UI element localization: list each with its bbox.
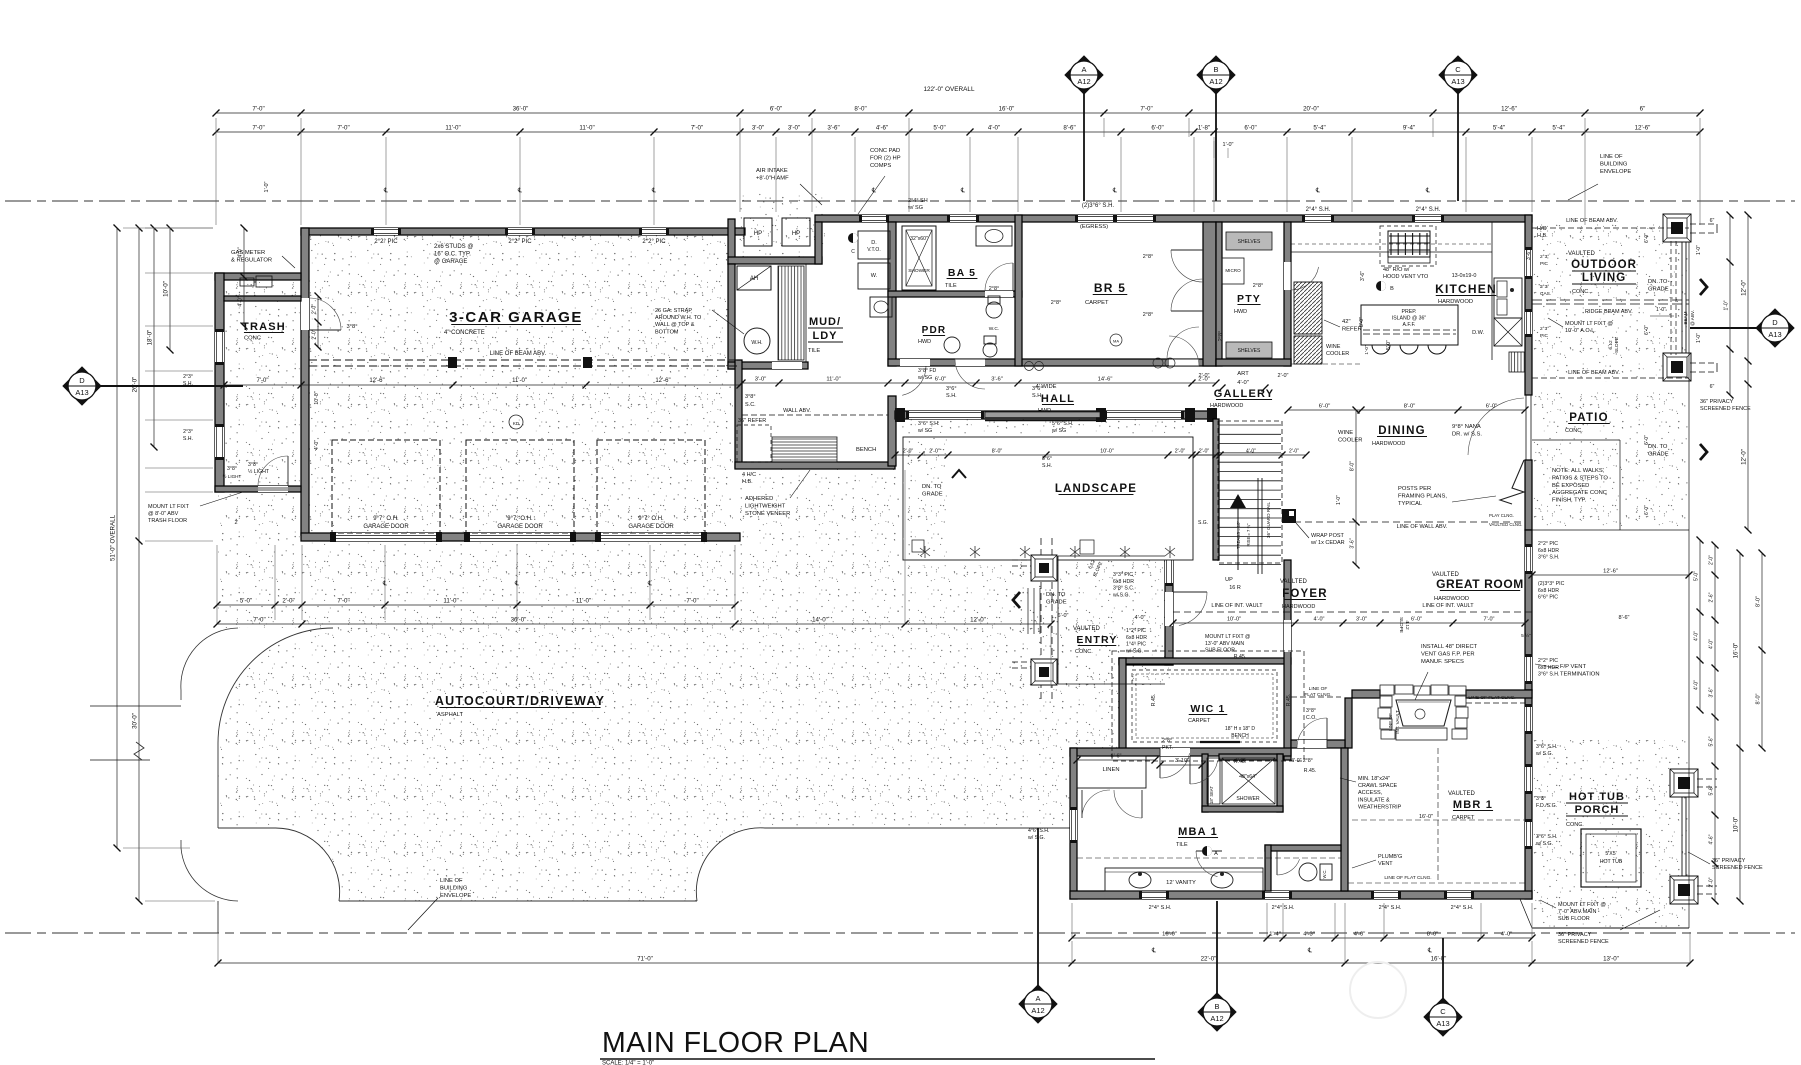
svg-text:7'-0": 7'-0"	[1484, 617, 1495, 623]
svg-text:6°6° PIC: 6°6° PIC	[1538, 595, 1558, 601]
svg-text:W.H.: W.H.	[751, 340, 762, 346]
svg-text:4'-3": 4'-3"	[1303, 932, 1315, 938]
svg-text:16" O.C. TYP.: 16" O.C. TYP.	[434, 252, 471, 258]
svg-text:BA 5: BA 5	[948, 267, 976, 279]
svg-text:@ GARAGE: @ GARAGE	[434, 259, 467, 265]
svg-text:W.C.: W.C.	[989, 326, 999, 332]
svg-text:VAULTED CLNG.: VAULTED CLNG.	[1489, 522, 1523, 527]
svg-text:℄: ℄	[651, 187, 657, 194]
svg-text:OUTDOOR: OUTDOOR	[1571, 259, 1637, 271]
svg-text:TILE: TILE	[945, 283, 957, 289]
svg-text:3°8°: 3°8°	[346, 324, 357, 330]
svg-text:4'-0": 4'-0"	[238, 296, 244, 306]
svg-text:8'-0": 8'-0"	[1427, 932, 1439, 938]
svg-text:8'-0": 8'-0"	[854, 106, 866, 113]
svg-text:7'-0": 7'-0"	[337, 125, 349, 132]
svg-text:w/ S.G.: w/ S.G.	[1536, 841, 1553, 847]
svg-text:4'-0": 4'-0"	[988, 125, 1000, 132]
svg-text:SUB FLOOR: SUB FLOOR	[1205, 648, 1235, 654]
svg-text:4'-0": 4'-0"	[1246, 449, 1256, 455]
svg-text:2°8°: 2°8°	[1253, 283, 1264, 289]
svg-text:BOTTOM: BOTTOM	[655, 329, 679, 335]
svg-text:INSTALL 48" DIRECT: INSTALL 48" DIRECT	[1421, 644, 1478, 650]
svg-text:12'-0": 12'-0"	[1741, 449, 1748, 465]
svg-text:LINE OF: LINE OF	[440, 878, 463, 884]
svg-text:3°3° PIC: 3°3° PIC	[1113, 572, 1133, 578]
svg-text:LINE OF: LINE OF	[1309, 686, 1328, 692]
svg-text:ISLAND @ 36": ISLAND @ 36"	[1392, 316, 1427, 322]
svg-text:6x8 HDR: 6x8 HDR	[1538, 548, 1559, 554]
svg-text:1'-8": 1'-8"	[1198, 125, 1210, 132]
svg-text:PATIOS & STEPS TO: PATIOS & STEPS TO	[1552, 475, 1608, 481]
svg-text:3°6°: 3°6°	[1032, 386, 1043, 392]
svg-text:4'-0": 4'-0"	[238, 247, 244, 257]
svg-text:MOUNT LT FIXT @: MOUNT LT FIXT @	[1205, 634, 1250, 640]
svg-text:A13: A13	[1451, 77, 1464, 86]
svg-text:w/ 1x CEDAR: w/ 1x CEDAR	[1310, 540, 1345, 546]
svg-text:12'-0": 12'-0"	[970, 617, 986, 624]
svg-text:CARPET: CARPET	[1188, 718, 1211, 724]
svg-text:VAULTED: VAULTED	[1448, 791, 1475, 797]
svg-text:11'-0": 11'-0"	[443, 598, 458, 605]
svg-text:A13: A13	[75, 388, 88, 397]
svg-text:4'-0": 4'-0"	[1135, 615, 1146, 621]
svg-text:3'-6": 3'-6"	[1360, 271, 1366, 281]
svg-text:PREP.: PREP.	[1402, 309, 1417, 315]
svg-text:SHOWER: SHOWER	[908, 268, 930, 274]
svg-text:3°8°: 3°8°	[227, 466, 237, 472]
svg-text:2°3°: 2°3°	[1540, 326, 1549, 332]
svg-text:18" SEAT: 18" SEAT	[1209, 786, 1214, 804]
svg-text:NOTE: ALL WALKS,: NOTE: ALL WALKS,	[1552, 468, 1605, 474]
svg-text:HARDWOOD: HARDWOOD	[1438, 299, 1473, 305]
svg-text:20'-0": 20'-0"	[1303, 106, 1319, 113]
svg-text:2'-0": 2'-0"	[1199, 373, 1210, 379]
svg-text:SHOWER: SHOWER	[1236, 796, 1260, 802]
svg-text:FRAMING PLANS,: FRAMING PLANS,	[1398, 493, 1447, 499]
svg-text:KITCHEN: KITCHEN	[1435, 282, 1497, 296]
svg-text:B: B	[1214, 1002, 1219, 1011]
svg-text:MIN. 18"x24": MIN. 18"x24"	[1358, 776, 1390, 782]
svg-text:BUILDING: BUILDING	[440, 885, 468, 891]
svg-text:VAULTED: VAULTED	[1280, 579, 1307, 585]
svg-text:1'-0": 1'-0"	[264, 181, 270, 192]
svg-text:7'-8": 7'-8"	[1235, 758, 1246, 764]
svg-text:MOUNT LT FIXT @: MOUNT LT FIXT @	[1565, 321, 1613, 327]
svg-text:6x8 HDR: 6x8 HDR	[1113, 579, 1134, 585]
svg-text:2'-0": 2'-0"	[312, 304, 318, 314]
svg-text:5'-6": 5'-6"	[1709, 785, 1715, 795]
svg-text:5'-0": 5'-0"	[240, 598, 252, 605]
svg-text:CRAWL SPACE: CRAWL SPACE	[1358, 783, 1398, 789]
svg-text:2'-6": 2'-6"	[1709, 592, 1715, 602]
svg-text:3'-10": 3'-10"	[1175, 758, 1189, 764]
svg-text:9'-4": 9'-4"	[1403, 125, 1415, 132]
svg-text:1°2° PIC: 1°2° PIC	[1126, 628, 1146, 634]
svg-text:w/ SG: w/ SG	[907, 205, 923, 211]
svg-text:5'-6": 5'-6"	[1709, 736, 1715, 746]
svg-text:TYPICAL: TYPICAL	[1398, 501, 1423, 507]
svg-text:S.H.: S.H.	[946, 393, 957, 399]
svg-text:3°6° S.H.: 3°6° S.H.	[1538, 672, 1559, 678]
svg-text:S.H.: S.H.	[183, 436, 193, 442]
svg-text:16'-0": 16'-0"	[1162, 932, 1177, 938]
svg-text:C.O.: C.O.	[1306, 715, 1317, 721]
svg-text:4'-0": 4'-0"	[1694, 680, 1700, 690]
svg-text:PTY: PTY	[1237, 293, 1261, 305]
svg-text:D: D	[1772, 318, 1778, 327]
svg-text:AGGREGATE CONC: AGGREGATE CONC	[1552, 490, 1607, 496]
svg-text:4'-0": 4'-0"	[1709, 639, 1715, 649]
svg-text:℄: ℄	[960, 187, 966, 194]
svg-text:LANDSCAPE: LANDSCAPE	[1055, 483, 1137, 495]
svg-text:1'-0": 1'-0"	[1696, 245, 1702, 255]
svg-text:6'-0": 6'-0"	[1486, 404, 1498, 410]
svg-text:6": 6"	[1710, 384, 1715, 390]
svg-text:18" H x 18" D: 18" H x 18" D	[1225, 726, 1255, 732]
svg-text:COOLER: COOLER	[1326, 351, 1349, 357]
svg-text:TERMINATION: TERMINATION	[1560, 671, 1600, 677]
svg-text:10'-0": 10'-0"	[1227, 617, 1241, 623]
svg-text:℄: ℄	[517, 187, 523, 194]
svg-text:8'-0": 8'-0"	[1359, 317, 1365, 327]
svg-text:DN. TO: DN. TO	[1648, 279, 1668, 285]
svg-text:GRADE: GRADE	[1648, 451, 1669, 457]
svg-text:(2)3°3° PIC: (2)3°3° PIC	[1538, 581, 1565, 587]
svg-text:℄: ℄	[1151, 947, 1157, 954]
svg-text:RIDGE BEAM ABV.: RIDGE BEAM ABV.	[1585, 309, 1633, 315]
svg-text:BE EXPOSED: BE EXPOSED	[1552, 483, 1589, 489]
svg-text:12'-6": 12'-6"	[655, 378, 670, 384]
svg-text:3°8°: 3°8°	[1536, 796, 1546, 802]
svg-text:2°2° PIC: 2°2° PIC	[374, 239, 398, 245]
svg-text:1°4° PIC: 1°4° PIC	[1126, 642, 1146, 648]
svg-text:D: D	[79, 376, 85, 385]
svg-text:71'-0": 71'-0"	[637, 956, 653, 963]
svg-text:A: A	[1035, 994, 1040, 1003]
svg-text:2°2° PIC: 2°2° PIC	[642, 239, 666, 245]
svg-text:SHELVES: SHELVES	[1238, 239, 1261, 245]
svg-text:2°2° PIC: 2°2° PIC	[508, 239, 532, 245]
svg-text:8'-6": 8'-6"	[1619, 615, 1630, 621]
svg-text:8'-0": 8'-0"	[1756, 693, 1762, 704]
svg-text:16'-0": 16'-0"	[999, 106, 1015, 113]
svg-text:℄: ℄	[871, 187, 877, 194]
svg-text:6'-0": 6'-0"	[1644, 505, 1650, 515]
svg-text:10'-0": 10'-0"	[1100, 449, 1114, 455]
svg-text:MICRO: MICRO	[1225, 268, 1241, 273]
svg-text:MANUF. SPECS: MANUF. SPECS	[1421, 659, 1464, 665]
svg-text:6'-0": 6'-0"	[1644, 435, 1650, 445]
svg-text:2°4° S.H.: 2°4° S.H.	[1416, 207, 1441, 213]
svg-text:SCREENED FENCE: SCREENED FENCE	[1558, 939, 1609, 945]
svg-text:COOLER: COOLER	[1338, 437, 1362, 443]
svg-text:1'-0": 1'-0"	[1364, 345, 1369, 355]
svg-text:10'-0": 10'-0"	[163, 281, 170, 297]
svg-text:W.C.: W.C.	[1322, 869, 1327, 878]
svg-text:2'-0": 2'-0"	[282, 598, 294, 605]
svg-text:7'-0": 7'-0"	[1140, 106, 1152, 113]
svg-text:1'-0": 1'-0"	[1223, 142, 1234, 148]
svg-text:22'-0": 22'-0"	[1201, 956, 1217, 963]
svg-text:SLOPE: SLOPE	[1398, 617, 1404, 633]
svg-text:w/ SG: w/ SG	[1052, 428, 1066, 434]
svg-text:PDR: PDR	[922, 325, 947, 336]
svg-text:3°3°: 3°3°	[1540, 284, 1549, 290]
svg-text:w/ S.G.: w/ S.G.	[1126, 648, 1143, 654]
svg-text:LIGHTWEIGHT: LIGHTWEIGHT	[745, 503, 786, 509]
svg-text:WALL ABV.: WALL ABV.	[783, 408, 811, 414]
svg-text:SCALE: 1/4" = 1'-0": SCALE: 1/4" = 1'-0"	[602, 1061, 654, 1065]
svg-text:H.B.: H.B.	[742, 479, 753, 485]
svg-text:14'-0": 14'-0"	[812, 617, 828, 624]
svg-text:S.G.: S.G.	[1198, 520, 1208, 526]
svg-text:4.12: 4.12	[1404, 620, 1410, 630]
svg-text:TREADS = 10": TREADS = 10"	[1236, 521, 1241, 549]
svg-text:5'-0": 5'-0"	[1694, 571, 1700, 581]
svg-text:A: A	[1081, 65, 1086, 74]
svg-text:3°6° S.H.: 3°6° S.H.	[1536, 744, 1557, 750]
svg-text:WEATHERSTRIP: WEATHERSTRIP	[1358, 804, 1402, 810]
svg-text:½ LIGHT: ½ LIGHT	[248, 468, 270, 475]
svg-text:3°8° S.C.: 3°8° S.C.	[1113, 586, 1134, 592]
svg-text:PKT.: PKT.	[1162, 745, 1173, 751]
svg-text:HWD: HWD	[918, 339, 931, 345]
svg-text:6'-0": 6'-0"	[1244, 125, 1256, 132]
svg-text:LDY: LDY	[813, 330, 838, 342]
svg-text:W.: W.	[871, 273, 878, 279]
svg-text:HOT TUB: HOT TUB	[1569, 791, 1625, 803]
svg-text:3'-0": 3'-0"	[752, 125, 764, 132]
svg-text:4'-0": 4'-0"	[1694, 631, 1700, 641]
svg-text:F/P VENT: F/P VENT	[1560, 664, 1586, 670]
svg-text:S.C.: S.C.	[745, 402, 756, 408]
svg-text:ASPHALT: ASPHALT	[437, 712, 463, 718]
svg-text:6x8 HDR: 6x8 HDR	[1538, 665, 1559, 671]
svg-text:AH: AH	[750, 276, 758, 282]
svg-text:2'-0": 2'-0"	[1278, 373, 1289, 379]
svg-text:3°8° FD: 3°8° FD	[918, 368, 937, 374]
svg-text:2°8°: 2°8°	[989, 286, 1000, 292]
svg-text:12'-6": 12'-6"	[1635, 125, 1651, 132]
svg-text:13'-0" ABV MAIN: 13'-0" ABV MAIN	[1205, 641, 1244, 647]
svg-text:6'-6": 6'-6"	[1111, 754, 1122, 760]
svg-text:D.W.: D.W.	[1472, 330, 1484, 336]
svg-text:2'-0": 2'-0"	[1709, 555, 1715, 565]
svg-text:14'-6": 14'-6"	[1098, 377, 1113, 383]
svg-text:A: A	[1214, 851, 1218, 857]
svg-text:LINE OF INT. VAULT: LINE OF INT. VAULT	[1211, 603, 1263, 609]
svg-text:2: 2	[234, 520, 237, 526]
svg-text:BR 5: BR 5	[1094, 281, 1126, 295]
svg-text:A12: A12	[1077, 77, 1090, 86]
svg-text:10'-0": 10'-0"	[1733, 817, 1740, 833]
svg-text:CONC: CONC	[244, 336, 261, 342]
svg-text:A12: A12	[1209, 77, 1222, 86]
svg-text:12'-6": 12'-6"	[1603, 569, 1618, 575]
svg-text:LINE OF: LINE OF	[1388, 713, 1393, 731]
svg-text:COMPS: COMPS	[870, 163, 891, 169]
svg-text:10'-0" A.O.L.: 10'-0" A.O.L.	[1565, 328, 1596, 334]
svg-text:TRASH FLOOR: TRASH FLOOR	[148, 518, 187, 524]
svg-text:HALL: HALL	[1041, 393, 1075, 405]
svg-text:DN. TO: DN. TO	[1046, 592, 1066, 598]
svg-text:16'-0": 16'-0"	[1431, 956, 1447, 963]
svg-text:w/ SG: w/ SG	[918, 375, 932, 381]
svg-text:(2)3°6° S.H.: (2)3°6° S.H.	[1082, 203, 1114, 209]
svg-text:℄: ℄	[1315, 187, 1321, 194]
svg-text:A13: A13	[1436, 1019, 1449, 1028]
svg-text:ACCESS,: ACCESS,	[1358, 790, 1383, 796]
svg-text:16'-0": 16'-0"	[1419, 814, 1433, 820]
svg-text:48" R/O w/: 48" R/O w/	[1383, 267, 1410, 273]
svg-text:7'-0": 7'-0"	[252, 106, 264, 113]
svg-text:MBA 1: MBA 1	[1178, 826, 1218, 838]
svg-text:C: C	[851, 249, 855, 255]
svg-text:2°2° PIC: 2°2° PIC	[1538, 658, 1558, 664]
svg-text:A12: A12	[1031, 1006, 1044, 1015]
svg-text:℄: ℄	[1307, 947, 1313, 954]
svg-text:3°8°: 3°8°	[248, 462, 258, 468]
svg-text:LINE OF FLAT CLNG.: LINE OF FLAT CLNG.	[1468, 695, 1515, 701]
svg-text:4'-6": 4'-6"	[876, 125, 888, 132]
svg-text:LINE OF: LINE OF	[1600, 154, 1623, 160]
svg-text:STONE VENEER: STONE VENEER	[745, 511, 790, 517]
svg-text:122'-0" OVERALL: 122'-0" OVERALL	[923, 86, 975, 93]
svg-text:11'-0": 11'-0"	[512, 378, 527, 384]
svg-text:TILE: TILE	[1176, 842, 1188, 848]
svg-text:36" PRIVACY: 36" PRIVACY	[1712, 858, 1746, 864]
svg-text:TRASH: TRASH	[242, 321, 286, 333]
svg-text:2°4° S.H.: 2°4° S.H.	[1306, 207, 1331, 213]
svg-text:3°6° S.H.: 3°6° S.H.	[1538, 555, 1559, 561]
svg-text:INSULATE &: INSULATE &	[1358, 797, 1390, 803]
svg-text:6'-0": 6'-0"	[1151, 125, 1163, 132]
svg-text:AROUND W.H. TO: AROUND W.H. TO	[655, 315, 702, 321]
svg-text:4'-0": 4'-0"	[314, 440, 320, 450]
svg-text:3°8°: 3°8°	[745, 394, 756, 400]
svg-text:HOT TUB: HOT TUB	[1600, 859, 1623, 865]
svg-text:7'-0" ABV MAIN: 7'-0" ABV MAIN	[1558, 909, 1596, 915]
svg-text:1'-0": 1'-0"	[1656, 307, 1666, 313]
svg-text:11'-0": 11'-0"	[576, 598, 591, 605]
svg-text:SLOPE: SLOPE	[1614, 337, 1620, 353]
svg-text:HARDWOOD: HARDWOOD	[1372, 441, 1405, 447]
svg-text:SCREENED FENCE: SCREENED FENCE	[1700, 406, 1751, 412]
svg-text:HOOD VENT VTO: HOOD VENT VTO	[1383, 274, 1429, 280]
svg-text:5 ½": 5 ½"	[1521, 632, 1531, 639]
svg-text:GARAGE DOOR: GARAGE DOOR	[628, 524, 674, 530]
svg-text:CONC PAD: CONC PAD	[870, 148, 900, 154]
svg-text:2'-0": 2'-0"	[1289, 449, 1299, 455]
svg-text:6'-0": 6'-0"	[935, 377, 947, 383]
svg-text:WALL @ TOP &: WALL @ TOP &	[655, 322, 695, 328]
svg-text:GAS METER: GAS METER	[231, 250, 265, 256]
svg-text:9°7° O.H.: 9°7° O.H.	[507, 516, 533, 522]
svg-text:12'-6": 12'-6"	[1501, 106, 1517, 113]
svg-text:R.45.: R.45.	[1304, 768, 1316, 774]
svg-text:6x8 HDR: 6x8 HDR	[1126, 635, 1147, 641]
svg-text:8'-0": 8'-0"	[1756, 596, 1762, 607]
svg-text:FOR (2) HP: FOR (2) HP	[870, 155, 901, 161]
svg-text:7'-0": 7'-0"	[257, 378, 269, 384]
svg-text:C: C	[1455, 65, 1461, 74]
svg-text:9°7° O.H.: 9°7° O.H.	[373, 516, 399, 522]
svg-text:F.D./S.G.: F.D./S.G.	[1536, 803, 1557, 809]
svg-text:4 H/C: 4 H/C	[742, 472, 756, 478]
svg-text:3°8°: 3°8°	[1306, 708, 1316, 714]
svg-text:2°4° S.H.: 2°4° S.H.	[1379, 905, 1402, 911]
svg-text:BEAM: BEAM	[1683, 311, 1688, 324]
svg-text:6": 6"	[1640, 106, 1646, 113]
svg-text:B: B	[1390, 286, 1394, 292]
svg-text:w/ S.G.: w/ S.G.	[1028, 835, 1045, 841]
svg-text:42": 42"	[1342, 319, 1351, 325]
svg-text:36" GUARD RAIL: 36" GUARD RAIL	[1266, 502, 1271, 539]
svg-text:FOYER: FOYER	[1282, 588, 1328, 600]
svg-text:℄: ℄	[382, 580, 388, 587]
svg-text:DN. TO: DN. TO	[1648, 444, 1668, 450]
svg-text:51'-0" OVERALL: 51'-0" OVERALL	[110, 514, 117, 561]
svg-text:H/C: H/C	[1537, 226, 1547, 232]
svg-text:5'-4": 5'-4"	[1493, 125, 1505, 132]
svg-text:4'-0": 4'-0"	[1237, 380, 1249, 386]
svg-text:AUTOCOURT/DRIVEWAY: AUTOCOURT/DRIVEWAY	[435, 694, 605, 708]
svg-text:16'-0": 16'-0"	[1733, 643, 1740, 659]
svg-text:(EGRESS): (EGRESS)	[1080, 224, 1108, 230]
svg-text:LINEN: LINEN	[1102, 767, 1119, 773]
svg-text:LINE OF BEAM ABV.: LINE OF BEAM ABV.	[1566, 218, 1618, 224]
svg-text:TILE: TILE	[808, 348, 820, 354]
svg-text:DR. w/ S.S.: DR. w/ S.S.	[1452, 431, 1482, 437]
svg-text:WIC 1: WIC 1	[1190, 703, 1225, 715]
svg-text:ART: ART	[1237, 371, 1249, 377]
svg-text:CARPET: CARPET	[1452, 815, 1475, 821]
svg-text:℄: ℄	[1427, 947, 1433, 954]
svg-text:3'-6": 3'-6"	[1526, 250, 1532, 260]
svg-text:11'-0": 11'-0"	[579, 125, 594, 132]
svg-text:HWD: HWD	[1234, 309, 1247, 315]
svg-text:2°4° SH: 2°4° SH	[908, 198, 928, 204]
svg-text:HARDWOOD: HARDWOOD	[1434, 596, 1469, 602]
svg-text:GARAGE DOOR: GARAGE DOOR	[497, 524, 543, 530]
svg-text:WRAP POST: WRAP POST	[1311, 533, 1345, 539]
svg-text:CONC.: CONC.	[1572, 289, 1590, 295]
svg-text:2'-0": 2'-0"	[1709, 877, 1715, 887]
svg-text:5'X5': 5'X5'	[1605, 851, 1616, 857]
svg-text:MOUNT LT FIXT @: MOUNT LT FIXT @	[1558, 902, 1606, 908]
svg-text:12' VANITY: 12' VANITY	[1166, 880, 1196, 886]
svg-text:2x6 STUDS @: 2x6 STUDS @	[434, 244, 473, 250]
svg-text:ENTRY: ENTRY	[1076, 634, 1117, 646]
svg-text:SCREENED FENCE: SCREENED FENCE	[1712, 865, 1763, 871]
svg-text:DINING: DINING	[1378, 425, 1425, 437]
svg-text:LINE OF BEAM ABV.: LINE OF BEAM ABV.	[1568, 370, 1620, 376]
svg-text:SUB FLOOR: SUB FLOOR	[1558, 916, 1590, 922]
svg-text:A.F.F.: A.F.F.	[1403, 322, 1416, 328]
svg-text:2°3°: 2°3°	[183, 374, 193, 380]
svg-text:SHELVES: SHELVES	[1238, 348, 1261, 354]
svg-text:2°4° S.H.: 2°4° S.H.	[1149, 905, 1172, 911]
svg-text:4'-0" 2°8°: 4'-0" 2°8°	[1291, 758, 1313, 764]
svg-text:℄: ℄	[514, 580, 520, 587]
svg-text:1'-4": 1'-4"	[1269, 932, 1281, 938]
svg-text:PIC: PIC	[1540, 261, 1549, 267]
svg-text:2'-0": 2'-0"	[312, 329, 318, 339]
svg-text:KD: KD	[513, 421, 520, 426]
svg-text:8'-0": 8'-0"	[1404, 404, 1416, 410]
svg-text:D.: D.	[871, 240, 877, 246]
